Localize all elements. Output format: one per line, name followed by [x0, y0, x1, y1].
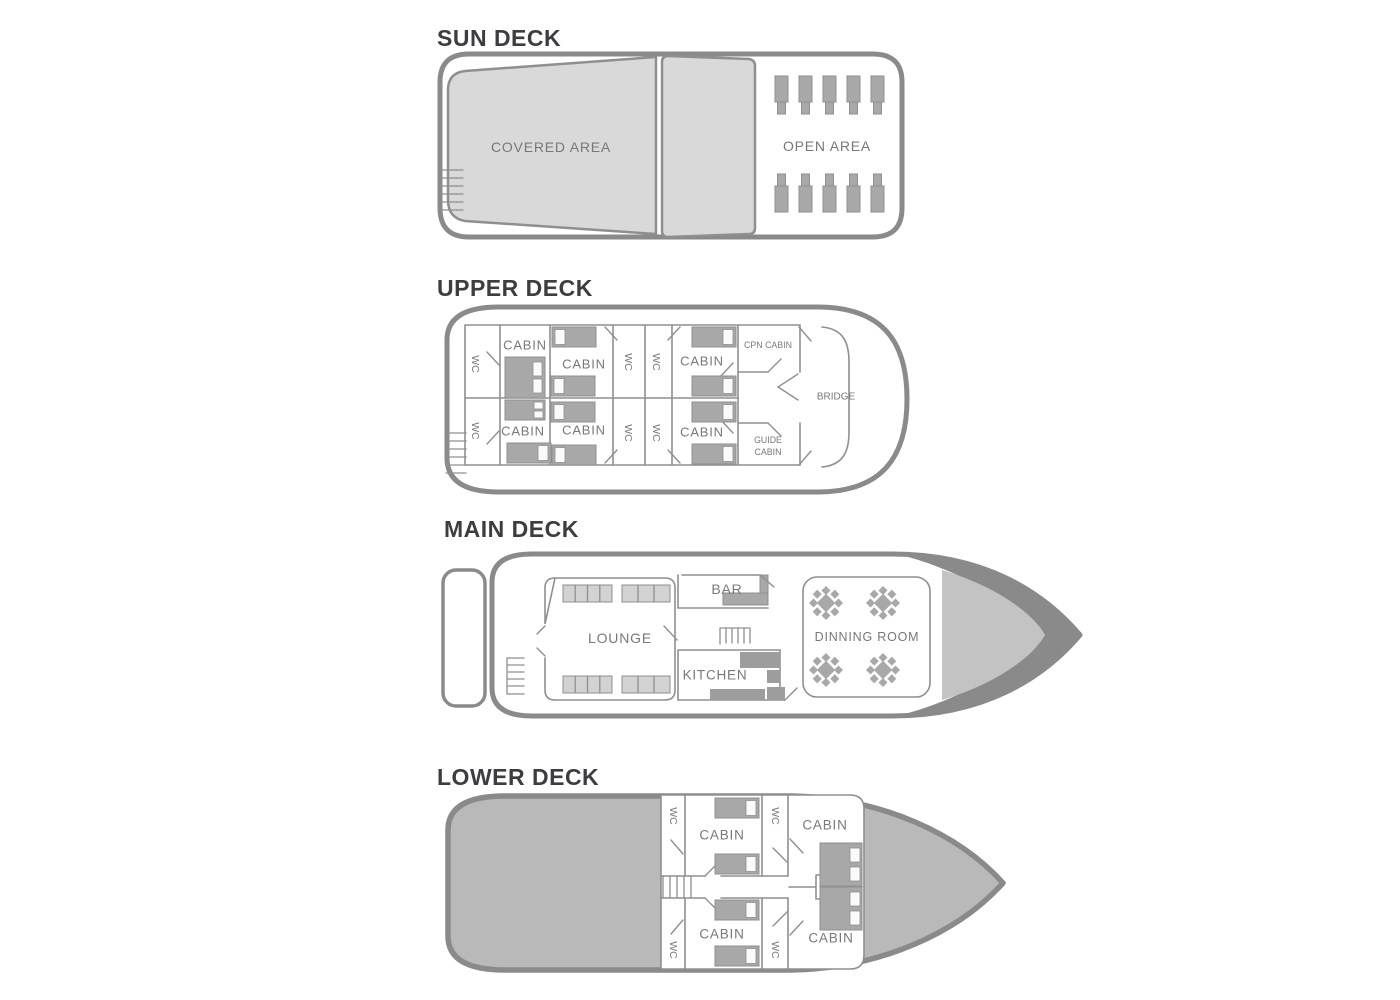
wc-label: WC: [650, 424, 662, 442]
cabin-label: CABIN: [680, 425, 724, 440]
kitchen-label: KITCHEN: [683, 668, 748, 683]
upper-deck-plan: CABIN CABIN CABIN CABIN CABIN CABIN WC W…: [437, 300, 912, 497]
main-deck-title: MAIN DECK: [444, 516, 579, 543]
sun-deck-title: SUN DECK: [437, 25, 561, 52]
guide-cabin-label-line1: GUIDE: [754, 435, 782, 445]
wc-label: WC: [650, 353, 662, 371]
bar-label: BAR: [711, 581, 742, 597]
cabin-label: CABIN: [802, 818, 847, 833]
mid-deck-panel: [662, 56, 755, 237]
cabin-label: CABIN: [699, 828, 744, 843]
bridge-label: BRIDGE: [817, 392, 856, 403]
cpn-cabin-label: CPN CABIN: [744, 340, 792, 350]
cabin-label: CABIN: [562, 423, 606, 438]
cabin-label: CABIN: [501, 424, 545, 439]
wc-label: WC: [667, 941, 679, 959]
guide-cabin-label-line2: CABIN: [755, 447, 782, 457]
stern-platform: [443, 570, 485, 706]
sun-deck-plan: COVERED AREA OPEN AREA: [437, 50, 907, 242]
deck-plan-page: SUN DECK UPPER DECK MAIN DECK LOWER DECK: [0, 0, 1400, 1000]
cabin-label: CABIN: [562, 357, 606, 372]
lounge-label: LOUNGE: [588, 630, 652, 646]
cabin-label: CABIN: [699, 927, 744, 942]
cabin-label: CABIN: [503, 338, 547, 353]
wc-label: WC: [769, 807, 781, 825]
upper-deck-title: UPPER DECK: [437, 275, 593, 302]
open-area-label: OPEN AREA: [783, 138, 871, 154]
wc-label: WC: [622, 353, 634, 371]
dining-room-label: DINNING ROOM: [815, 630, 920, 644]
wc-label: WC: [769, 941, 781, 959]
main-deck-plan: LOUNGE BAR KITCHEN DINNING ROOM: [437, 548, 1092, 723]
cabin-label: CABIN: [680, 354, 724, 369]
wc-label: WC: [667, 807, 679, 825]
lower-deck-plan: CABIN CABIN CABIN CABIN WC WC WC WC: [437, 788, 1012, 980]
wc-label: WC: [469, 355, 481, 373]
lower-deck-title: LOWER DECK: [437, 764, 599, 791]
wc-label: WC: [469, 422, 481, 440]
wc-label: WC: [622, 424, 634, 442]
covered-area-label: COVERED AREA: [491, 139, 611, 155]
cabin-label: CABIN: [808, 931, 853, 946]
